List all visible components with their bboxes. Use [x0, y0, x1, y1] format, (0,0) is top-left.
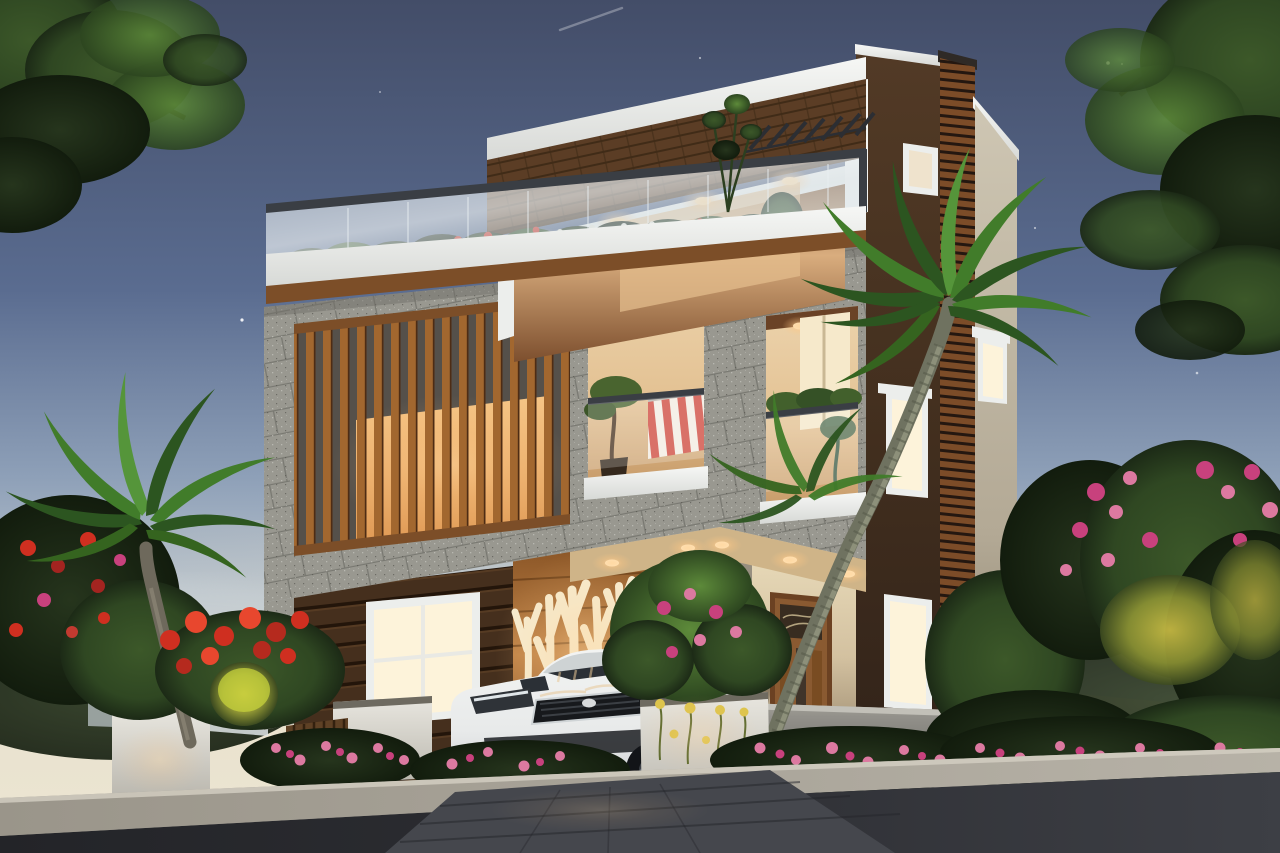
warm-light-pool	[490, 788, 710, 832]
car-badge	[582, 699, 596, 708]
side-window-bottom	[884, 594, 932, 712]
railing-corner-post	[859, 149, 867, 213]
side-window-top	[903, 143, 938, 196]
scene-canvas	[0, 0, 1280, 853]
architectural-rendering	[0, 0, 1280, 853]
balcony-glass-left	[588, 394, 704, 470]
planter-far-left	[112, 708, 210, 800]
